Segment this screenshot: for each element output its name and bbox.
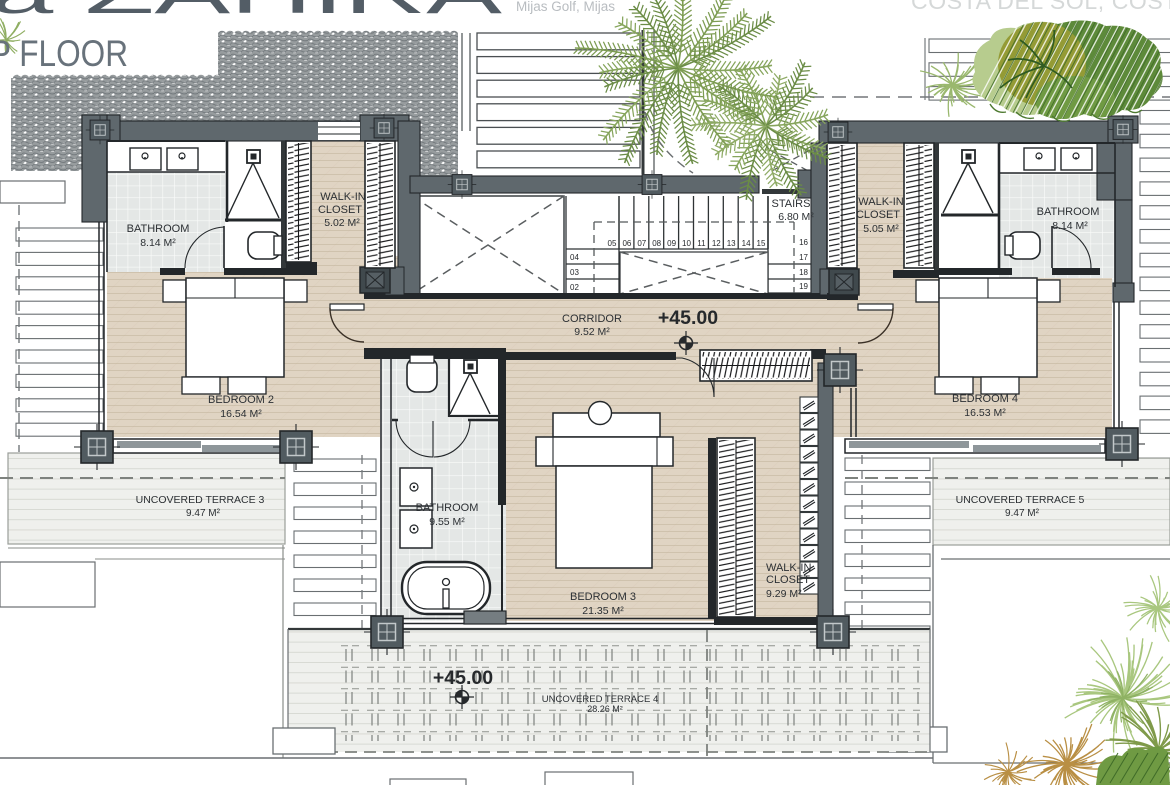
- svg-text:BEDROOM 4: BEDROOM 4: [952, 393, 1018, 405]
- svg-text:a ZAHIRA: a ZAHIRA: [0, 0, 503, 25]
- svg-text:15: 15: [757, 239, 766, 248]
- svg-text:18: 18: [799, 268, 808, 277]
- svg-text:9.52 M²: 9.52 M²: [574, 326, 610, 338]
- svg-text:16: 16: [799, 238, 808, 247]
- svg-text:WALK-IN: WALK-IN: [766, 562, 811, 574]
- svg-text:BATHROOM: BATHROOM: [127, 223, 190, 235]
- svg-text:16.54 M²: 16.54 M²: [220, 408, 262, 420]
- svg-text:9.47 M²: 9.47 M²: [1005, 508, 1040, 519]
- svg-text:BEDROOM 2: BEDROOM 2: [208, 394, 274, 406]
- svg-text:21.35 M²: 21.35 M²: [582, 605, 624, 617]
- svg-text:16.53 M²: 16.53 M²: [964, 407, 1006, 419]
- svg-text:03: 03: [570, 268, 579, 277]
- svg-text:P FLOOR: P FLOOR: [0, 33, 128, 74]
- svg-text:14: 14: [742, 239, 751, 248]
- svg-text:STAIRS: STAIRS: [772, 198, 811, 210]
- svg-text:9.29 M²: 9.29 M²: [766, 588, 802, 600]
- svg-text:9.55 M²: 9.55 M²: [429, 516, 465, 528]
- svg-text:17: 17: [799, 253, 808, 262]
- svg-text:WALK-IN: WALK-IN: [320, 191, 365, 203]
- svg-text:Mijas Golf, Mijas: Mijas Golf, Mijas: [516, 0, 615, 14]
- svg-text:9.47 M²: 9.47 M²: [186, 508, 221, 519]
- svg-text:CLOSET: CLOSET: [318, 204, 362, 216]
- svg-text:BATHROOM: BATHROOM: [1037, 206, 1100, 218]
- svg-text:BATHROOM: BATHROOM: [416, 502, 479, 514]
- svg-text:11: 11: [697, 239, 706, 248]
- svg-text:+45.00: +45.00: [658, 307, 718, 329]
- svg-text:5.05 M²: 5.05 M²: [863, 223, 899, 235]
- svg-text:5.02 M²: 5.02 M²: [324, 217, 360, 229]
- svg-text:07: 07: [637, 239, 646, 248]
- svg-text:06: 06: [622, 239, 631, 248]
- svg-text:UNCOVERED TERRACE 5: UNCOVERED TERRACE 5: [956, 494, 1085, 506]
- svg-text:8.14 M²: 8.14 M²: [140, 237, 176, 249]
- svg-text:12: 12: [712, 239, 721, 248]
- svg-text:10: 10: [682, 239, 691, 248]
- svg-text:+45.00: +45.00: [433, 667, 493, 689]
- svg-text:WALK-IN: WALK-IN: [858, 196, 903, 208]
- svg-text:8.14 M²: 8.14 M²: [1052, 220, 1088, 232]
- svg-text:19: 19: [799, 282, 808, 291]
- svg-text:08: 08: [652, 239, 661, 248]
- svg-text:04: 04: [570, 253, 579, 262]
- svg-text:UNCOVERED TERRACE 3: UNCOVERED TERRACE 3: [136, 494, 265, 506]
- svg-text:COSTA DEL SOL, COSTA DEL: COSTA DEL SOL, COSTA DEL: [911, 0, 1170, 14]
- svg-text:28.26 M²: 28.26 M²: [587, 704, 623, 714]
- svg-text:05: 05: [608, 239, 617, 248]
- svg-text:CORRIDOR: CORRIDOR: [562, 313, 622, 325]
- svg-text:02: 02: [570, 283, 579, 292]
- svg-text:6.80 M²: 6.80 M²: [778, 211, 814, 223]
- svg-text:CLOSET: CLOSET: [856, 209, 900, 221]
- svg-text:13: 13: [727, 239, 736, 248]
- svg-text:CLOSET: CLOSET: [766, 574, 810, 586]
- svg-text:09: 09: [667, 239, 676, 248]
- svg-text:BEDROOM 3: BEDROOM 3: [570, 591, 636, 603]
